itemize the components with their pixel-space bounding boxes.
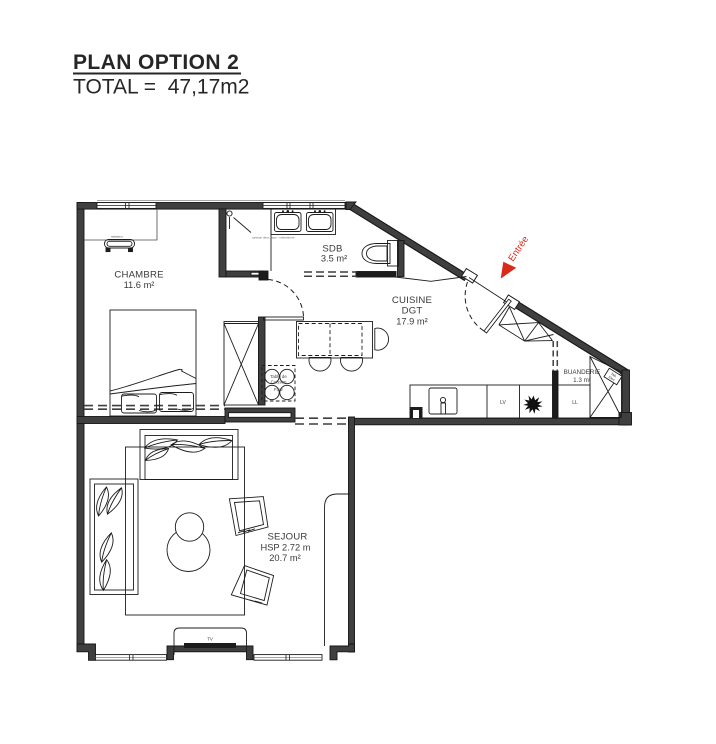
svg-text:CHAMBRE: CHAMBRE (114, 270, 163, 281)
svg-text:SEJOUR: SEJOUR (267, 532, 307, 543)
svg-text:PLAN OPTION 2: PLAN OPTION 2 (73, 51, 239, 74)
svg-text:Cuisson: Cuisson (271, 380, 287, 385)
svg-text:radiateur: radiateur (111, 235, 123, 239)
svg-text:DGT: DGT (402, 306, 423, 317)
svg-text:17.9 m²: 17.9 m² (396, 317, 428, 327)
svg-text:1.3 m²: 1.3 m² (573, 377, 591, 384)
svg-text:Table de: Table de (270, 374, 287, 379)
svg-text:Entrée: Entrée (506, 234, 531, 263)
svg-text:3.5 m²: 3.5 m² (321, 254, 347, 264)
svg-text:CUISINE: CUISINE (392, 295, 432, 306)
svg-text:TV: TV (207, 637, 213, 642)
svg-text:TOTAL = 47,17m2: TOTAL = 47,17m2 (73, 76, 249, 99)
svg-text:BUANDERIE: BUANDERIE (564, 369, 601, 376)
svg-text:Four: Four (274, 387, 284, 392)
svg-text:LV: LV (500, 400, 506, 406)
svg-text:LL: LL (572, 400, 578, 406)
svg-text:HSP 2.72 m: HSP 2.72 m (261, 543, 311, 553)
svg-text:11.6 m²: 11.6 m² (124, 280, 155, 290)
svg-text:caisson deux bacs - robinetter: caisson deux bacs - robinetterie (252, 236, 295, 240)
svg-text:20.7 m²: 20.7 m² (269, 553, 301, 563)
